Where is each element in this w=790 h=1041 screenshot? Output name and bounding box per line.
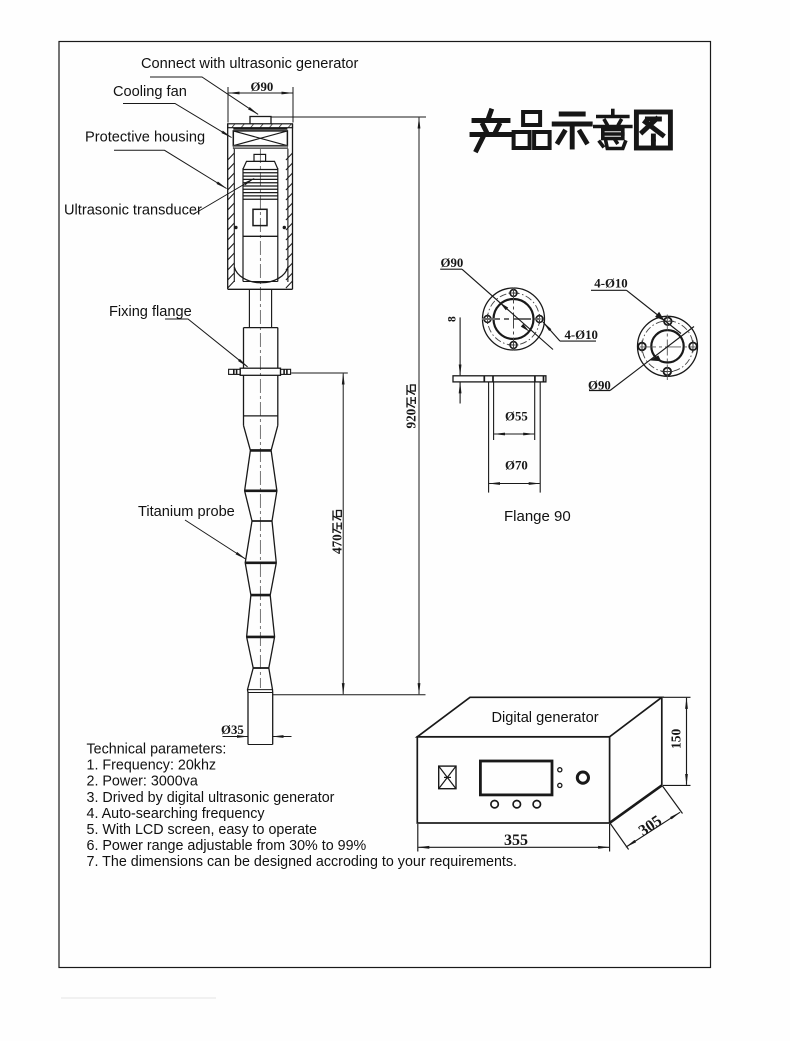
svg-text:Cooling fan: Cooling fan — [113, 84, 187, 100]
svg-text:Technical parameters:: Technical parameters: — [87, 742, 227, 758]
svg-text:4. Auto-searching frequency: 4. Auto-searching frequency — [87, 806, 266, 822]
svg-text:Ø70: Ø70 — [505, 459, 528, 473]
svg-text:Ø35: Ø35 — [221, 723, 244, 737]
svg-text:355: 355 — [504, 832, 528, 849]
svg-text:Connect with ultrasonic genera: Connect with ultrasonic generator — [141, 56, 359, 72]
svg-text:3. Drived by digital ultrasoni: 3. Drived by digital ultrasonic generato… — [87, 790, 335, 806]
svg-text:1. Frequency: 20khz: 1. Frequency: 20khz — [87, 758, 217, 774]
svg-text:Flange 90: Flange 90 — [504, 508, 571, 525]
svg-text:Ø90: Ø90 — [441, 256, 464, 270]
svg-text:Digital generator: Digital generator — [492, 710, 599, 726]
svg-text:305: 305 — [636, 812, 665, 840]
svg-text:Ø90: Ø90 — [588, 379, 611, 393]
svg-text:Ø55: Ø55 — [505, 410, 528, 424]
svg-text:5. With LCD screen, easy to op: 5. With LCD screen, easy to operate — [87, 822, 317, 838]
svg-text:Fixing flange: Fixing flange — [109, 304, 192, 320]
svg-text:Ø90: Ø90 — [251, 80, 274, 94]
svg-text:Titanium probe: Titanium probe — [138, 504, 235, 520]
svg-text:2. Power: 3000va: 2. Power: 3000va — [87, 774, 198, 790]
svg-text:Ultrasonic transducer: Ultrasonic transducer — [64, 203, 202, 219]
svg-text:470: 470 — [330, 534, 345, 554]
svg-text:7. The dimensions can be desig: 7. The dimensions can be designed accrod… — [87, 854, 517, 870]
svg-text:Protective housing: Protective housing — [85, 130, 205, 146]
svg-text:6. Power range adjustable from: 6. Power range adjustable from 30% to 99… — [87, 838, 367, 854]
svg-text:8: 8 — [447, 316, 459, 322]
svg-text:920: 920 — [404, 408, 419, 428]
svg-text:4-Ø10: 4-Ø10 — [565, 328, 598, 342]
svg-text:4-Ø10: 4-Ø10 — [594, 277, 627, 291]
svg-text:150: 150 — [669, 729, 684, 750]
